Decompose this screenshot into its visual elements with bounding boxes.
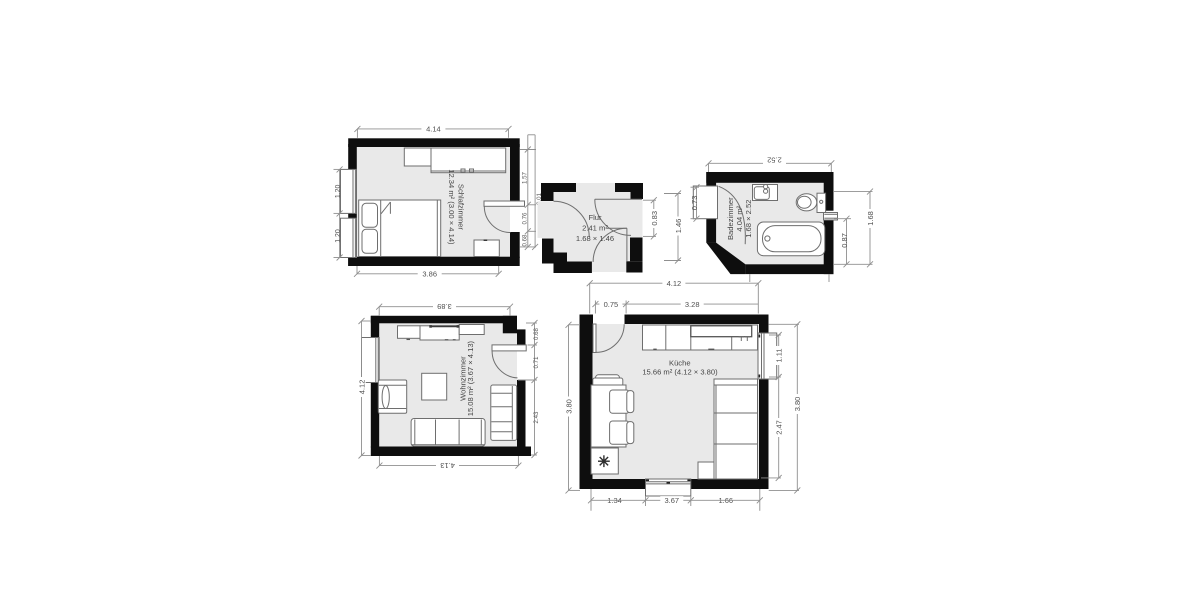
svg-text:0.75: 0.75 (604, 300, 619, 309)
svg-text:1.68 × 1.46: 1.68 × 1.46 (576, 234, 614, 243)
svg-text:15.66 m² (4.12 × 3.80): 15.66 m² (4.12 × 3.80) (642, 367, 718, 376)
svg-text:3.89: 3.89 (437, 302, 452, 311)
svg-text:0.76: 0.76 (522, 212, 529, 224)
svg-text:2.47: 2.47 (775, 420, 784, 435)
svg-text:15.08 m² (3.67 × 4.13): 15.08 m² (3.67 × 4.13) (466, 340, 475, 416)
svg-text:4.12: 4.12 (357, 380, 366, 395)
svg-text:1.57: 1.57 (522, 171, 529, 183)
svg-text:0.87: 0.87 (840, 233, 849, 248)
svg-text:Flur: Flur (588, 213, 602, 222)
svg-text:4.12: 4.12 (667, 279, 682, 288)
svg-text:4.04 m²: 4.04 m² (735, 205, 744, 231)
svg-text:Schlafzimmer: Schlafzimmer (457, 184, 466, 230)
svg-text:3.80: 3.80 (793, 397, 802, 412)
svg-text:0.68: 0.68 (522, 234, 529, 246)
svg-text:Badezimmer: Badezimmer (726, 197, 735, 240)
svg-text:2.43: 2.43 (533, 411, 540, 423)
svg-text:2.52: 2.52 (767, 156, 782, 165)
svg-text:12.34 m² (3.00 × 4.14): 12.34 m² (3.00 × 4.14) (447, 169, 456, 245)
svg-text:1.20: 1.20 (335, 185, 342, 199)
svg-text:3.28: 3.28 (685, 300, 700, 309)
svg-text:3.86: 3.86 (422, 270, 437, 279)
svg-text:0.71: 0.71 (533, 356, 540, 368)
svg-text:4.14: 4.14 (426, 125, 441, 134)
svg-text:1.20: 1.20 (335, 229, 342, 243)
svg-text:3.67: 3.67 (664, 496, 679, 505)
svg-text:0.83: 0.83 (650, 211, 659, 226)
svg-text:Küche: Küche (669, 358, 691, 367)
svg-text:4.13: 4.13 (440, 461, 455, 470)
svg-text:2.41 m²: 2.41 m² (582, 223, 608, 232)
svg-text:1.68: 1.68 (866, 211, 875, 226)
svg-text:0.68: 0.68 (533, 327, 540, 339)
svg-text:1.68 × 2.52: 1.68 × 2.52 (744, 200, 753, 238)
svg-text:1.46: 1.46 (674, 219, 683, 234)
svg-text:1.11: 1.11 (775, 348, 784, 362)
svg-text:0.73: 0.73 (690, 196, 699, 211)
svg-text:3.80: 3.80 (564, 399, 573, 414)
